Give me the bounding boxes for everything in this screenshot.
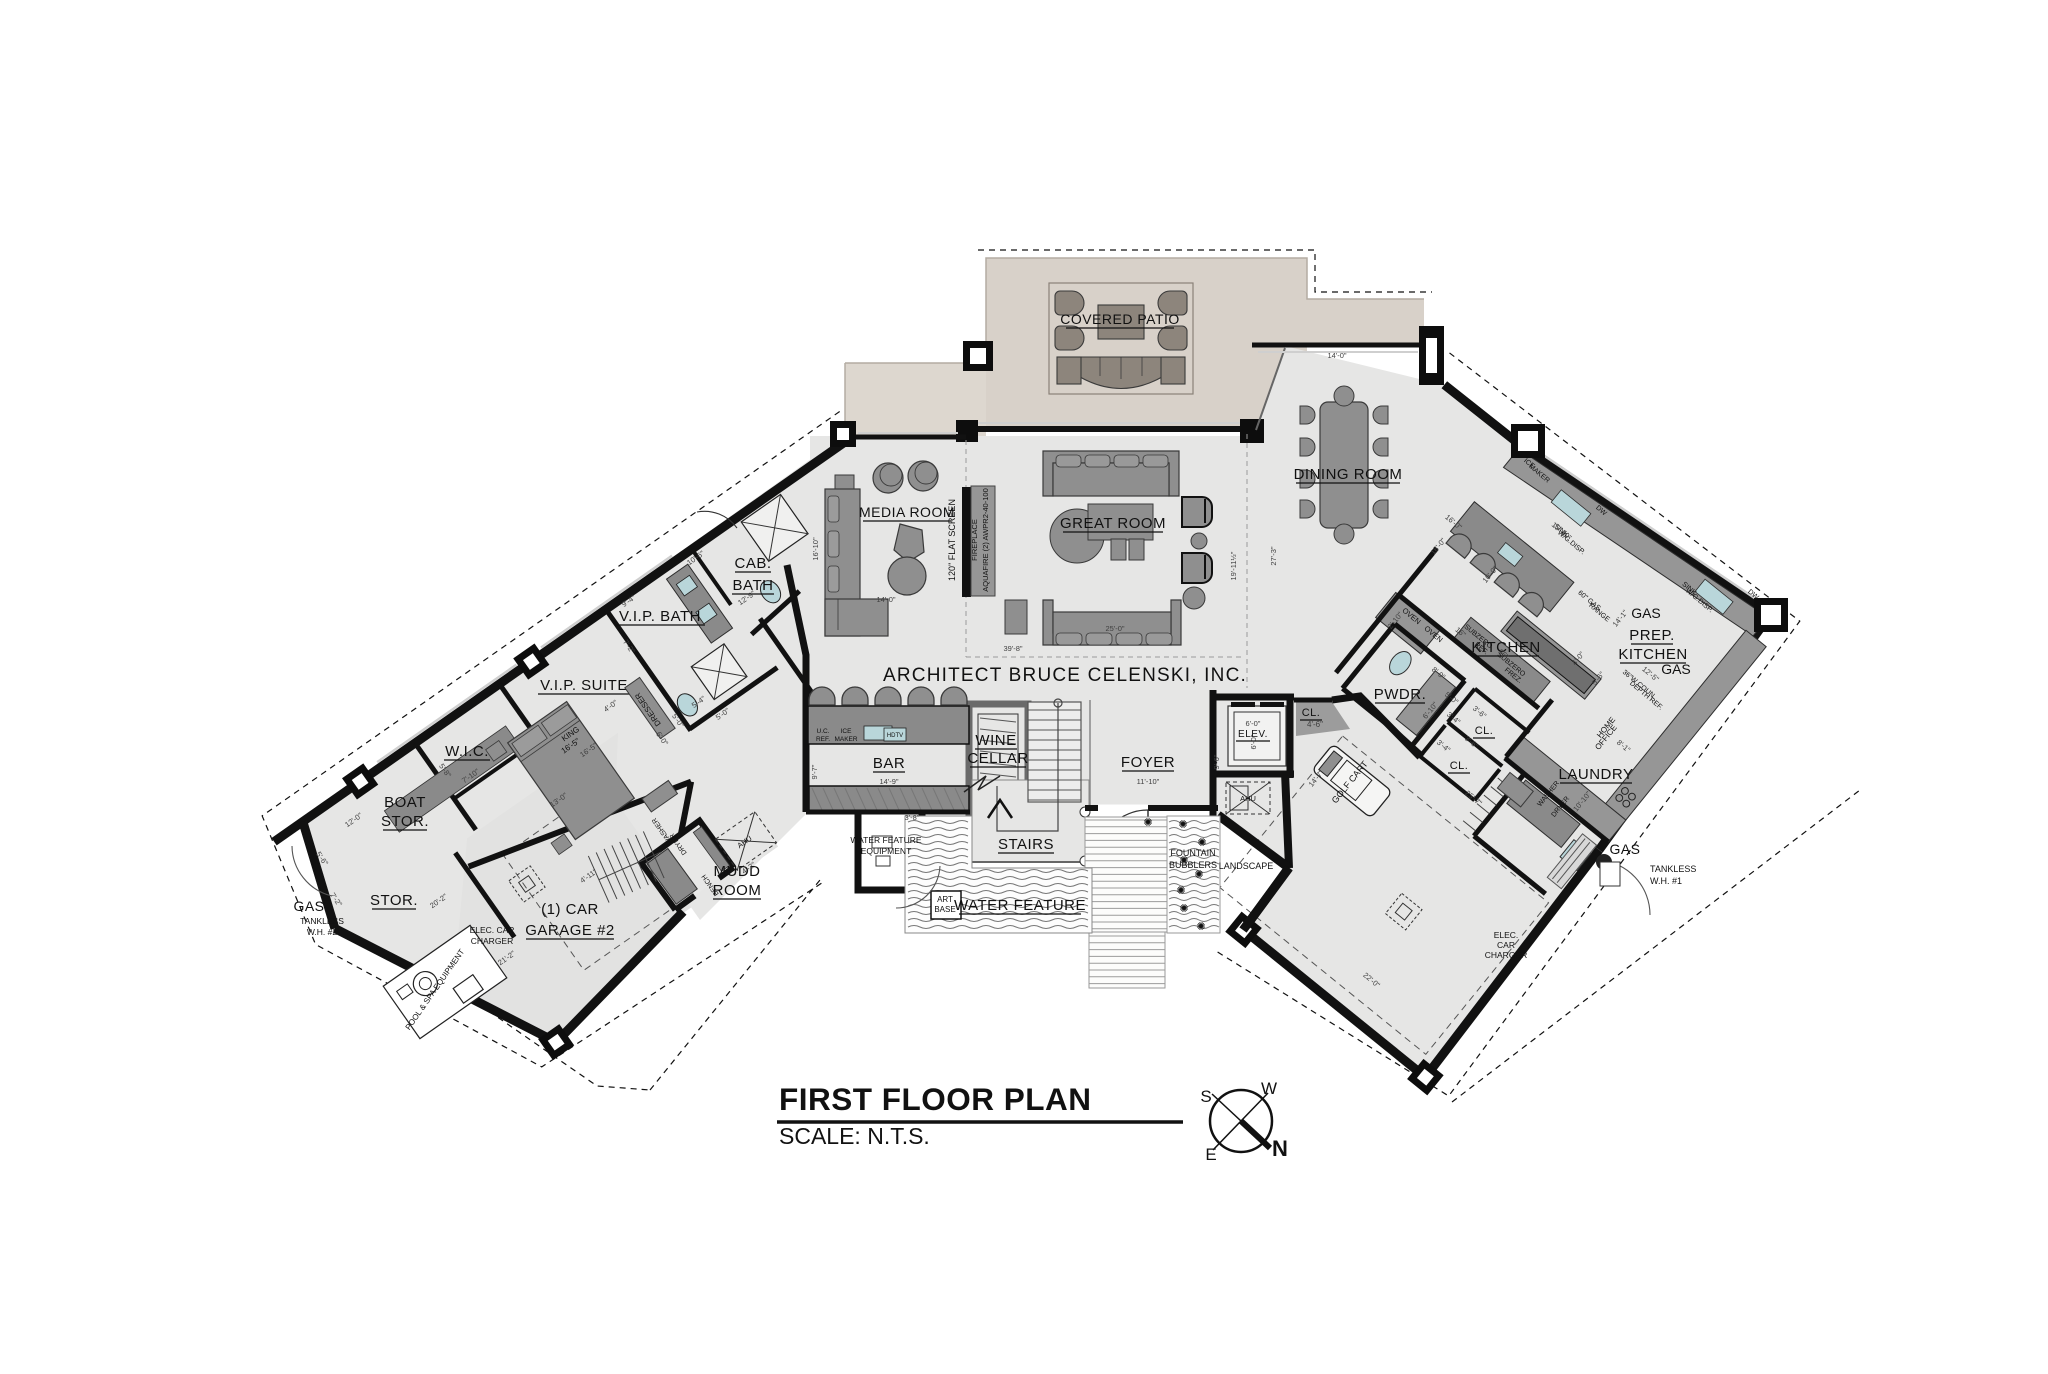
svg-text:BAR: BAR [873,755,905,772]
svg-text:9'-7": 9'-7" [810,764,819,779]
svg-text:COVERED PATIO: COVERED PATIO [1060,311,1180,327]
svg-text:LANDSCAPE: LANDSCAPE [1219,861,1274,871]
svg-text:BASE: BASE [934,905,955,914]
svg-text:ELEC.: ELEC. [1494,930,1519,940]
svg-text:GAS: GAS [293,898,324,914]
svg-text:6'-0": 6'-0" [1249,734,1258,749]
svg-text:4'-6": 4'-6" [1307,720,1323,729]
svg-text:14'-9": 14'-9" [879,777,898,786]
svg-text:GAS: GAS [1661,661,1691,677]
svg-text:TANKLESS: TANKLESS [300,916,344,926]
svg-text:BOAT: BOAT [384,794,426,811]
svg-text:E: E [1205,1145,1216,1164]
svg-text:STOR.: STOR. [370,892,418,909]
svg-text:AQUAFIRE (2) AWPR2-40-100: AQUAFIRE (2) AWPR2-40-100 [981,488,990,592]
svg-text:GAS: GAS [1631,605,1661,621]
svg-text:CAB.: CAB. [734,555,771,572]
svg-text:STAIRS: STAIRS [998,836,1054,853]
svg-text:CL.: CL. [1302,707,1321,719]
svg-text:CELLAR: CELLAR [967,750,1028,767]
svg-text:ARCHITECT BRUCE CELENSKI, INC.: ARCHITECT BRUCE CELENSKI, INC. [883,665,1247,686]
svg-text:LAUNDRY: LAUNDRY [1559,766,1634,783]
svg-text:FIRST FLOOR PLAN: FIRST FLOOR PLAN [779,1081,1091,1117]
svg-text:CL.: CL. [1450,760,1469,772]
svg-text:ELEC. CAR: ELEC. CAR [470,925,515,935]
svg-text:STOR.: STOR. [381,813,429,830]
svg-text:(1) CAR: (1) CAR [541,901,599,918]
svg-text:WATER FEATURE: WATER FEATURE [954,897,1086,914]
svg-text:CAR: CAR [1497,940,1515,950]
svg-text:V.I.P. SUITE: V.I.P. SUITE [540,677,628,694]
svg-text:WINE: WINE [975,732,1016,749]
svg-text:W: W [1261,1079,1277,1098]
svg-text:ICE: ICE [841,728,853,735]
svg-text:GAS: GAS [1609,841,1640,857]
svg-text:PWDR.: PWDR. [1374,686,1427,703]
svg-text:CL.: CL. [1475,725,1494,737]
svg-text:CHARGER: CHARGER [471,936,514,946]
svg-text:TANKLESS: TANKLESS [1650,864,1696,874]
svg-text:3'-8": 3'-8" [905,813,920,822]
svg-text:120" FLAT SCREEN: 120" FLAT SCREEN [947,499,957,581]
svg-text:16'-10": 16'-10" [811,537,820,561]
svg-text:✺: ✺ [1143,817,1152,829]
svg-text:AHU: AHU [1240,794,1256,803]
svg-text:EQUIPMENT: EQUIPMENT [861,846,912,856]
svg-text:V.I.P. BATH: V.I.P. BATH [619,608,701,625]
svg-text:27'-3": 27'-3" [1269,546,1278,565]
svg-text:CHARGER: CHARGER [1485,950,1528,960]
svg-text:W.H. #1: W.H. #1 [1650,876,1682,886]
svg-text:MAKER: MAKER [834,736,857,743]
svg-text:19'-11½": 19'-11½" [1229,551,1238,580]
svg-text:FOYER: FOYER [1121,754,1175,771]
svg-text:25'-0": 25'-0" [1105,624,1124,633]
svg-text:S: S [1200,1087,1211,1106]
svg-text:HDTV: HDTV [887,733,903,739]
svg-text:14'-0": 14'-0" [1327,351,1346,360]
svg-text:U.C.: U.C. [817,728,830,735]
svg-text:GARAGE #2: GARAGE #2 [525,922,615,939]
svg-text:FOUNTAIN: FOUNTAIN [1170,848,1215,858]
svg-text:FIREPLACE: FIREPLACE [970,519,979,561]
svg-text:✺: ✺ [1176,885,1185,897]
svg-text:MEDIA ROOM: MEDIA ROOM [859,504,955,520]
svg-text:WATER FEATURE: WATER FEATURE [850,835,921,845]
svg-text:✺: ✺ [1196,921,1205,933]
svg-text:39'-8": 39'-8" [1003,644,1022,653]
svg-text:✺: ✺ [1178,819,1187,831]
svg-text:W.I.C.: W.I.C. [445,743,489,760]
svg-text:N: N [1272,1136,1288,1161]
svg-text:14'-0": 14'-0" [876,595,895,604]
svg-text:SCALE: N.T.S.: SCALE: N.T.S. [779,1123,930,1149]
svg-text:ROOM: ROOM [713,882,762,899]
svg-text:✺: ✺ [1179,903,1188,915]
svg-text:W.H. #2: W.H. #2 [307,927,338,937]
svg-text:ART: ART [937,895,953,904]
svg-text:PREP.: PREP. [1629,627,1675,644]
svg-text:REF.: REF. [816,736,830,743]
svg-text:6'-0": 6'-0" [1246,719,1261,728]
svg-text:DINING ROOM: DINING ROOM [1294,466,1403,483]
svg-text:✺: ✺ [1194,869,1203,881]
svg-text:BUBBLERS: BUBBLERS [1169,860,1217,870]
svg-text:9'-6": 9'-6" [1212,754,1221,769]
svg-text:GREAT ROOM: GREAT ROOM [1060,515,1166,532]
svg-text:11'-10": 11'-10" [1137,777,1160,786]
